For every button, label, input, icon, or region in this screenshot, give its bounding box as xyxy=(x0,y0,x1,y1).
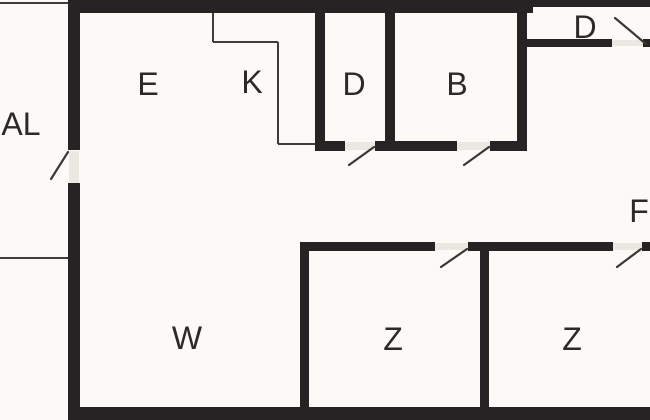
outer-top-wall xyxy=(68,0,533,13)
outer-bottom-wall xyxy=(68,407,650,420)
outer-left-wall-lower xyxy=(68,183,80,420)
z-top-wall-mid xyxy=(468,242,613,251)
room-label-e: E xyxy=(137,66,158,102)
d-b-bottom-wall-mid xyxy=(375,141,457,151)
entrance-wall xyxy=(527,39,612,47)
outer-left-wall-upper xyxy=(68,0,80,150)
door-z2-threshold xyxy=(613,243,642,250)
room-label-b: B xyxy=(446,66,467,102)
b-right-wall xyxy=(517,0,527,151)
divider-k-d-wall xyxy=(315,13,325,151)
z1-top-wall xyxy=(300,242,435,251)
door-z1-threshold xyxy=(435,243,468,250)
z-top-wall-stub xyxy=(642,242,650,251)
z1-left-wall xyxy=(300,242,309,420)
room-label-f: F xyxy=(629,193,649,229)
floorplan: ALEKDBDFWZZ xyxy=(0,0,650,420)
door-al-threshold xyxy=(69,151,79,183)
room-label-z2: Z xyxy=(562,321,582,357)
divider-z1-z2-wall xyxy=(480,242,489,420)
outer-top-right-wall xyxy=(533,0,650,7)
room-label-z1: Z xyxy=(383,321,403,357)
room-label-d: D xyxy=(342,66,365,102)
room-label-w: W xyxy=(172,320,203,356)
d-bottom-wall-left xyxy=(315,141,345,151)
floorplan-canvas: ALEKDBDFWZZ xyxy=(0,0,650,420)
divider-d-b-wall xyxy=(385,13,395,141)
door-entrance-threshold xyxy=(612,40,643,46)
room-label-d-entrance: D xyxy=(573,9,596,45)
room-label-al: AL xyxy=(1,106,40,142)
room-label-k: K xyxy=(241,64,262,100)
